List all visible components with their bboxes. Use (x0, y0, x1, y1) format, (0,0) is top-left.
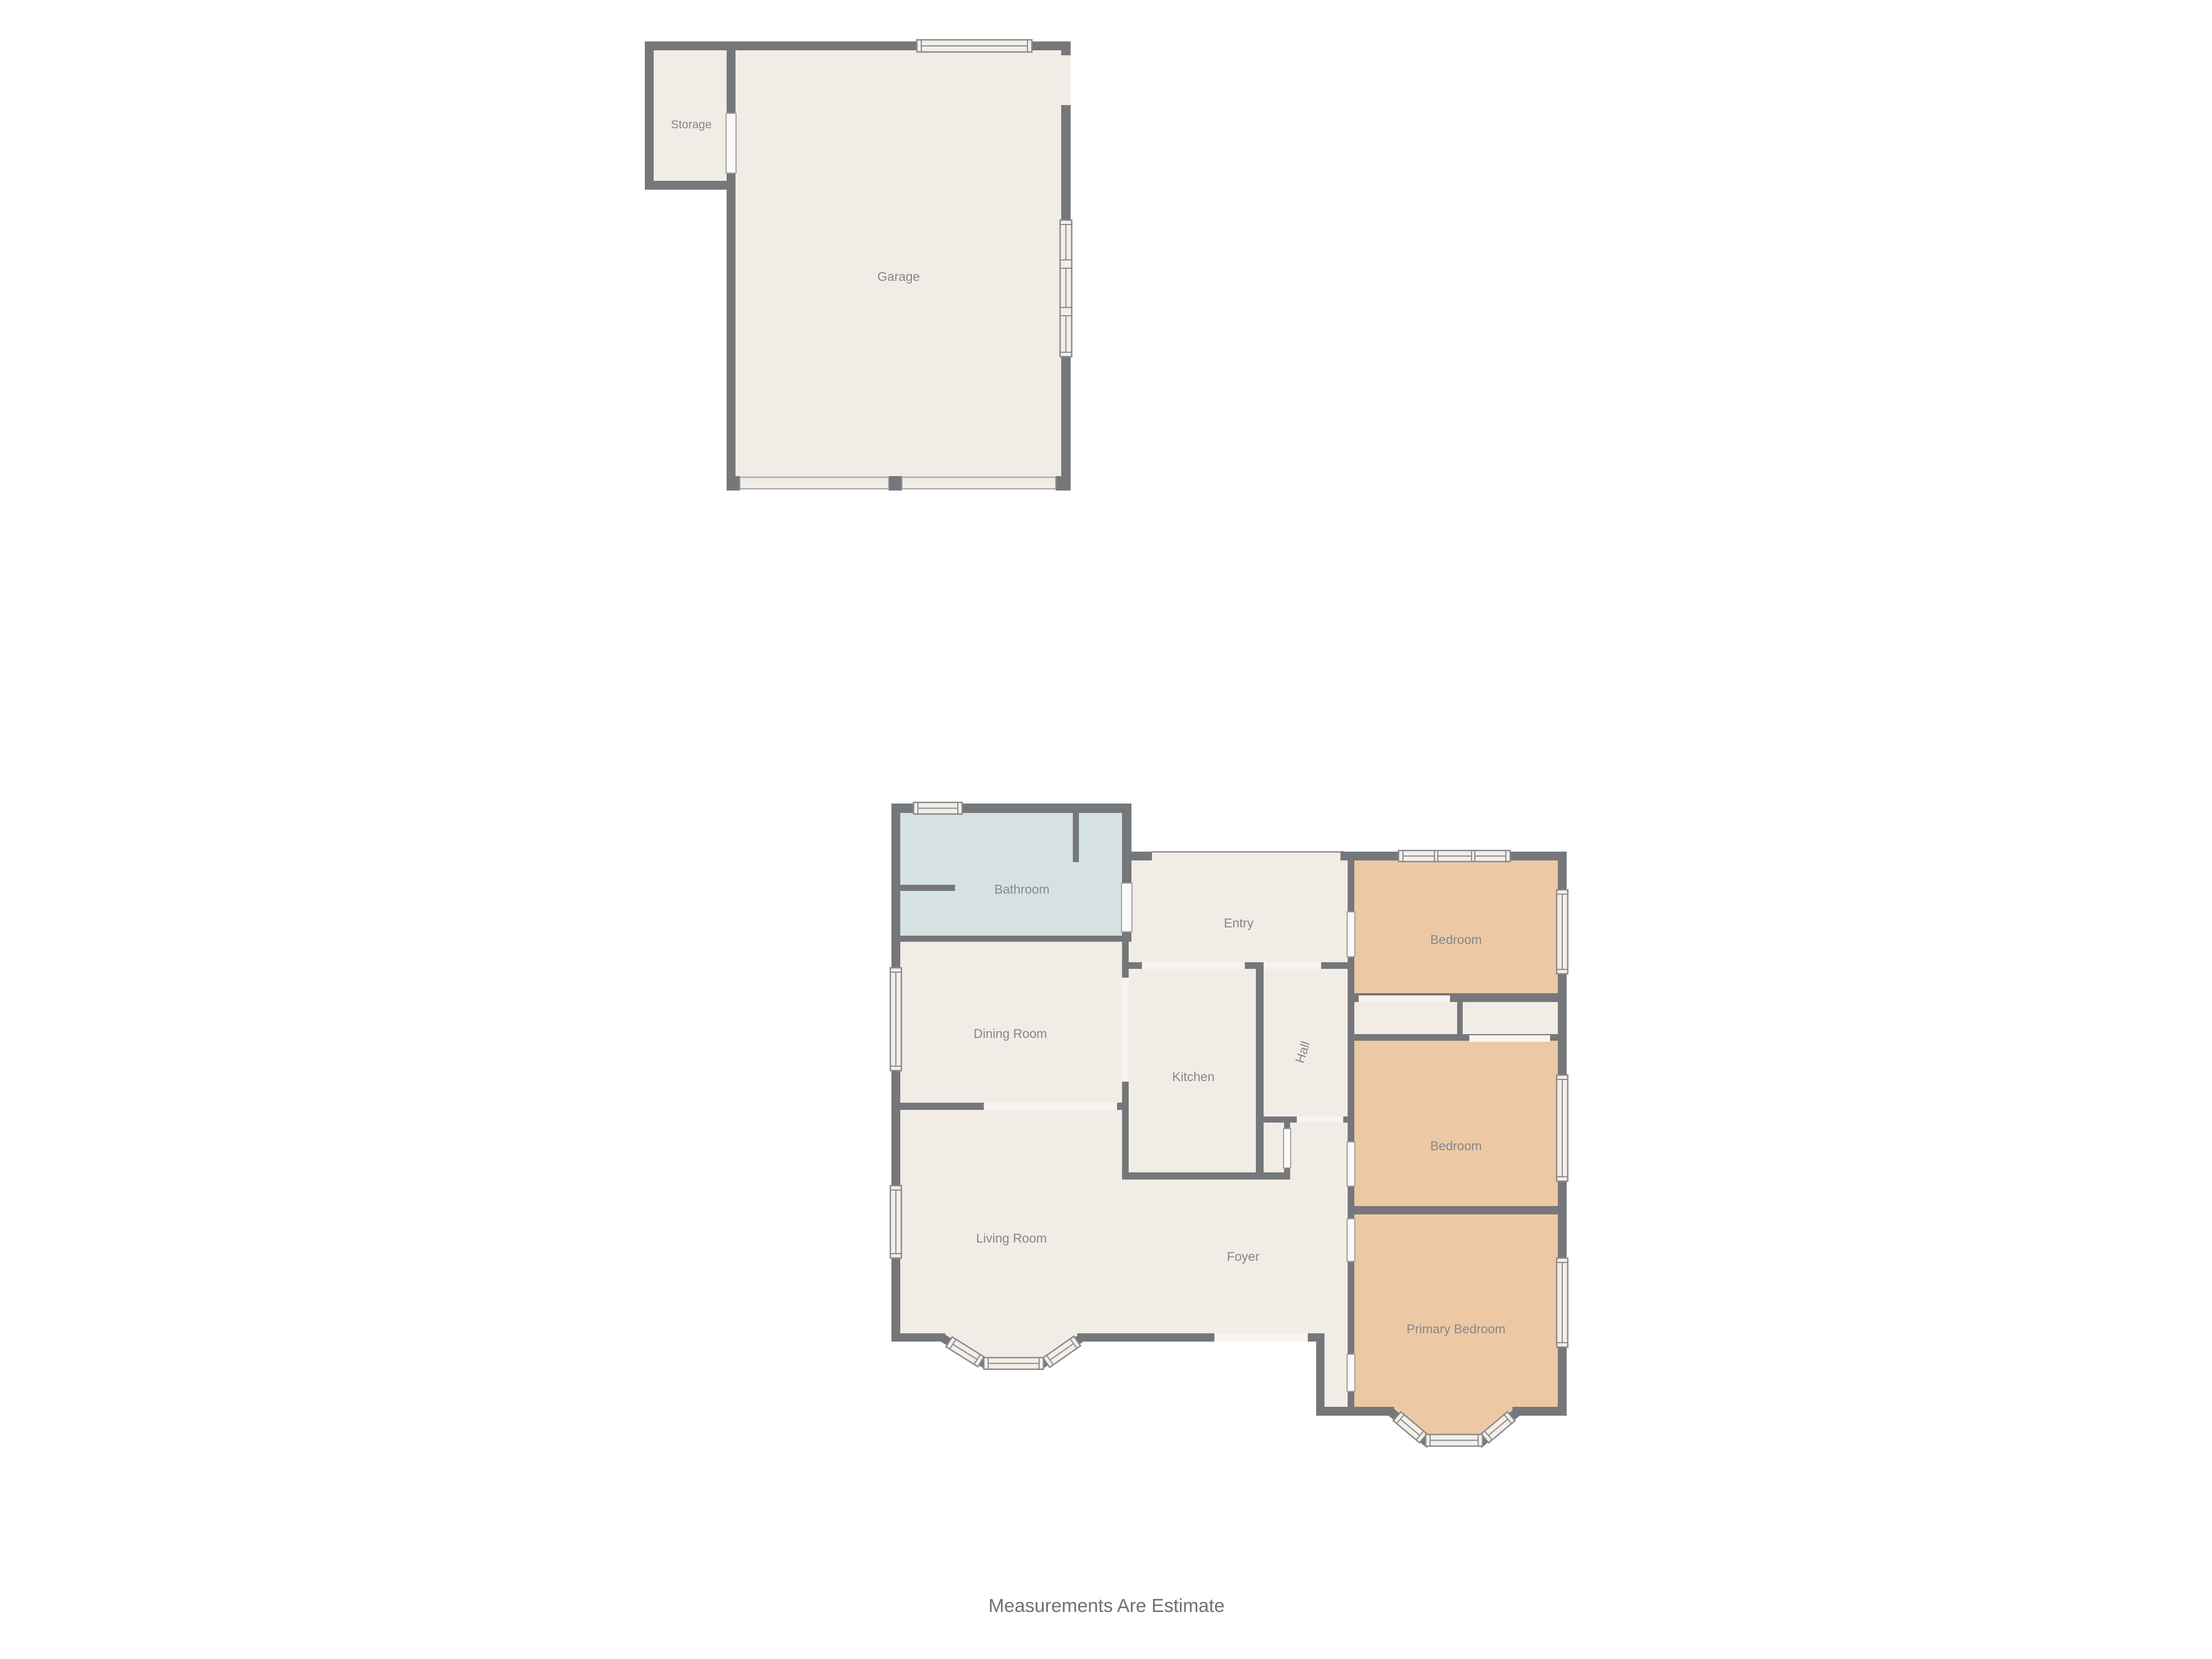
svg-text:Primary Bedroom: Primary Bedroom (1407, 1322, 1506, 1336)
svg-text:Garage: Garage (878, 269, 920, 284)
svg-text:Bedroom: Bedroom (1430, 1139, 1481, 1153)
svg-text:Bedroom: Bedroom (1430, 932, 1481, 947)
svg-text:Measurements Are Estimate: Measurements Are Estimate (988, 1595, 1224, 1616)
svg-text:Bathroom: Bathroom (994, 882, 1050, 896)
svg-text:Storage: Storage (671, 118, 712, 131)
svg-text:Foyer: Foyer (1227, 1249, 1260, 1264)
svg-text:Kitchen: Kitchen (1172, 1070, 1215, 1084)
svg-text:Living Room: Living Room (976, 1231, 1047, 1245)
svg-text:Dining Room: Dining Room (974, 1026, 1047, 1041)
svg-text:Entry: Entry (1224, 916, 1254, 930)
